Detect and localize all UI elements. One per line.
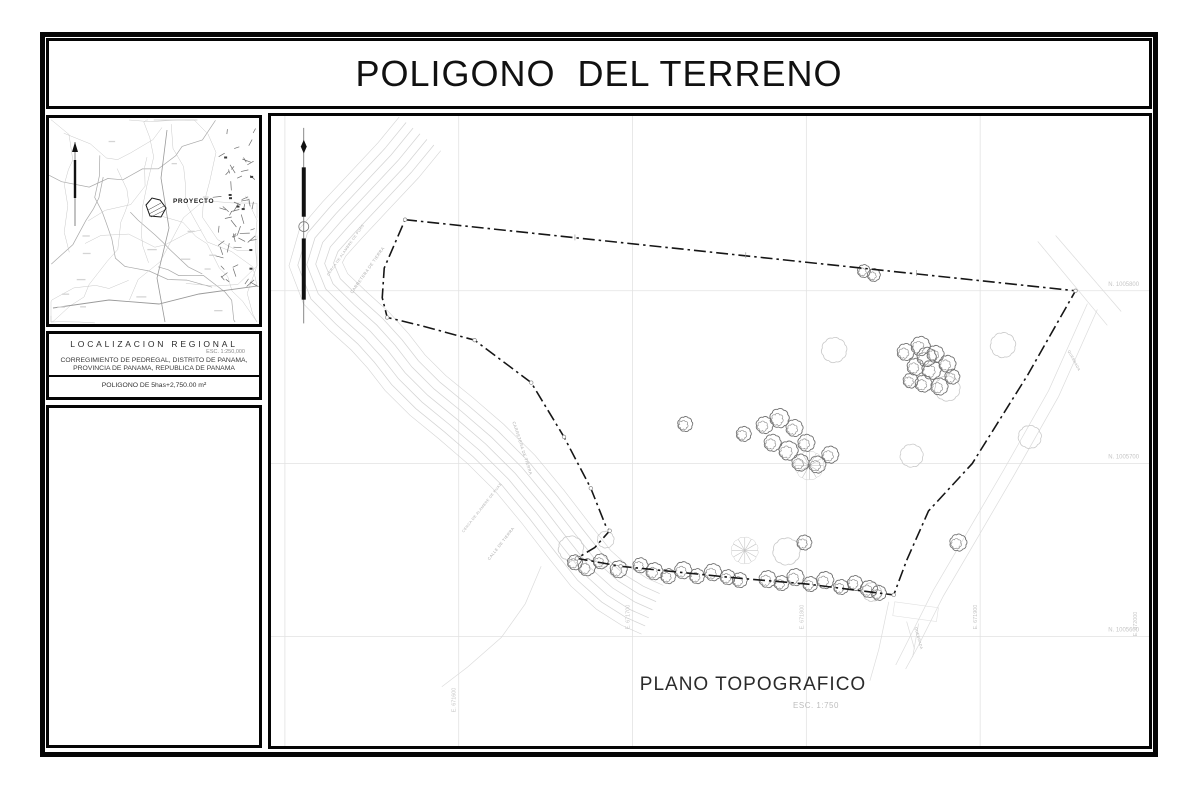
area-label: POLIGONO DE 5has+2,750.00 m²: [49, 382, 259, 389]
creeks: [442, 235, 1121, 686]
road-labels: CERCA DE ALAMBRE DE PUASCARRETERA DE TIE…: [326, 223, 1081, 650]
drawing-title: POLIGONO DEL TERRENO: [355, 53, 842, 95]
localizacion-heading: LOCALIZACION REGIONAL: [49, 339, 259, 349]
divider: [49, 375, 259, 377]
project-site-polygon: [146, 198, 166, 217]
location-map-box: PROYECTO: [46, 115, 262, 327]
easting-label: E. 671900: [973, 605, 979, 630]
grid-labels: N. 1005800N. 1005700N. 1005600E. 671600E…: [452, 282, 1140, 713]
road-label: CALLE DE TIERRA: [486, 526, 515, 561]
drawing-sheet: POLIGONO DEL TERRENO PROYECTO LOCALIZACI…: [0, 0, 1200, 800]
boundary-vertices: [385, 218, 1077, 597]
localizacion-box: LOCALIZACION REGIONAL ESC. 1:250,000 COR…: [46, 331, 262, 400]
road-label: CERCA DE ALAMBRE DE PUAS: [461, 482, 503, 533]
topographic-plan: N. 1005800N. 1005700N. 1005600E. 671600E…: [271, 116, 1149, 746]
trees-dark: [567, 265, 967, 601]
plan-caption: PLANO TOPOGRAFICO: [603, 674, 903, 696]
property-boundary: [382, 220, 1075, 595]
notes-box: [46, 405, 262, 748]
easting-label: E. 672000: [1133, 612, 1139, 637]
localizacion-line2: PROVINCIA DE PANAMA, REPUBLICA DE PANAMA: [49, 365, 259, 372]
northing-label: N. 1005700: [1108, 455, 1139, 461]
urban-area-hatch: [213, 129, 259, 287]
plan-box: N. 1005800N. 1005700N. 1005600E. 671600E…: [268, 113, 1152, 749]
title-block: POLIGONO DEL TERRENO: [46, 38, 1152, 109]
coordinate-grid: [271, 116, 1149, 746]
plan-caption-scale: ESC. 1:750: [756, 701, 876, 710]
map-label-smudges: [57, 141, 222, 311]
localizacion-line1: CORREGIMIENTO DE PEDREGAL, DISTRITO DE P…: [49, 357, 259, 364]
road-network: [49, 120, 257, 323]
road-label: CARRETERA DE TIERRA: [349, 246, 385, 295]
easting-label: E. 671800: [799, 605, 805, 630]
northing-label: N. 1005800: [1108, 282, 1139, 288]
localizacion-scale: ESC. 1:250,000: [206, 349, 245, 355]
road: [289, 117, 663, 634]
north-arrow: [299, 128, 309, 324]
road-label: QUEBRADA: [1067, 350, 1082, 372]
location-map: [49, 118, 259, 324]
easting-label: E. 671600: [452, 688, 458, 713]
proyecto-label: PROYECTO: [173, 198, 214, 205]
